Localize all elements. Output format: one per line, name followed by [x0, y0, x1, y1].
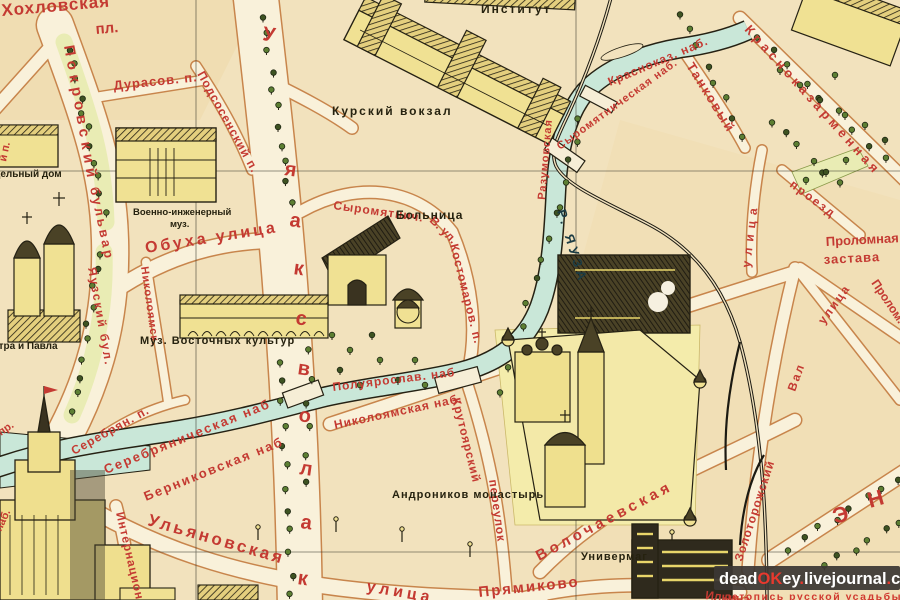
- map-label: Петра и Павла: [0, 341, 58, 352]
- map-label: Институт: [481, 2, 552, 16]
- map-label: Больница: [396, 208, 463, 222]
- building-military-museum: [116, 128, 216, 202]
- map-label: муз.: [170, 219, 189, 230]
- map-label: застава: [823, 249, 880, 267]
- moscow-vintage-map: Хохловскаяпл.ПокровскийбульварДурасов. п…: [0, 0, 900, 600]
- map-label: Курский вокзал: [332, 104, 453, 118]
- map-stage: Хохловскаяпл.ПокровскийбульварДурасов. п…: [0, 0, 900, 600]
- watermark: deadOKey.livejournal.com летопись русско…: [714, 566, 900, 600]
- rotunda-small: [397, 300, 419, 323]
- watermark-subtitle: летопись русской усадьбы: [724, 591, 900, 600]
- map-label: Военно-инженерный: [133, 207, 232, 218]
- map-label: Универмаг: [581, 551, 648, 563]
- map-label: одельный дом: [0, 169, 62, 180]
- map-label: Муз. Восточных культур: [140, 335, 295, 347]
- map-label: пл.: [95, 19, 119, 38]
- map-label: Андроников монастырь: [392, 489, 544, 501]
- watermark-text: deadOKey.livejournal.com: [719, 570, 900, 588]
